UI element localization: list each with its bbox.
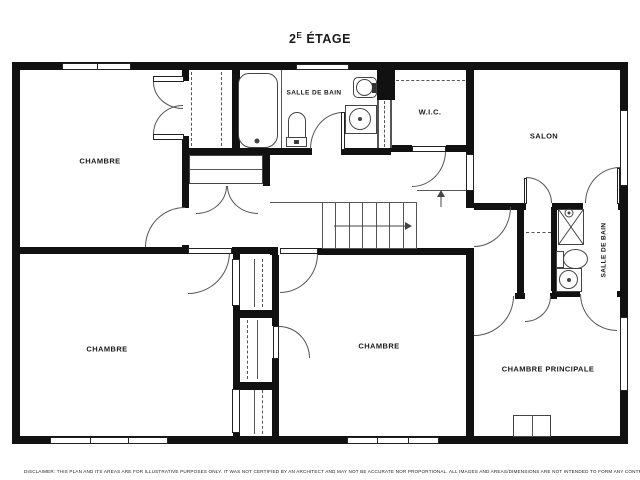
- room-label-walk-in-closet: W.I.C.: [419, 108, 442, 117]
- closet-rod: [221, 72, 222, 146]
- door-leaf: [280, 248, 318, 254]
- closet-rod: [262, 390, 263, 434]
- wall: [377, 62, 395, 100]
- closet-rod: [247, 320, 248, 379]
- wall: [617, 291, 628, 297]
- door-opening: [466, 208, 474, 248]
- room-label-bedroom-bottom-left: CHAMBRE: [86, 345, 127, 354]
- closet-track-line: [254, 390, 255, 434]
- closet-rod: [262, 259, 263, 307]
- wall-closet-divider: [240, 382, 273, 390]
- door-arc: [188, 252, 230, 294]
- door-arc: [412, 151, 446, 187]
- window: [296, 64, 349, 70]
- room-label-bathroom-ensuite: SALLE DE BAIN: [601, 222, 608, 277]
- wall: [341, 148, 391, 155]
- door-leaf: [153, 76, 184, 82]
- door-arc: [153, 105, 183, 134]
- door-arc: [310, 112, 343, 149]
- door-arc: [280, 254, 318, 293]
- sink-oval-basin: [356, 79, 373, 96]
- window: [347, 437, 439, 444]
- door-arc: [474, 296, 514, 336]
- pocket-door-jamb: [377, 100, 379, 148]
- toilet-flush: [294, 140, 299, 144]
- sink-faucet: [372, 83, 376, 93]
- door-leaf: [153, 134, 184, 140]
- wall: [263, 148, 270, 186]
- window: [62, 63, 131, 70]
- room-label-master-bedroom: CHAMBRE PRINCIPALE: [502, 365, 594, 374]
- room-label-bedroom-middle: CHAMBRE: [358, 342, 399, 351]
- floor-plan: 2E ÉTAGE: [0, 0, 640, 480]
- door-arc: [526, 177, 552, 203]
- door-leaf: [617, 168, 620, 204]
- closet-door-track: [232, 259, 240, 306]
- closet-rod: [191, 72, 192, 146]
- closet-shelf: [396, 80, 465, 81]
- dresser-divider: [532, 415, 533, 437]
- door-leaf: [273, 326, 279, 359]
- stairs-up-arrow: [437, 190, 445, 197]
- door-arc: [279, 326, 310, 358]
- window: [50, 437, 168, 444]
- wall: [466, 62, 474, 155]
- wall: [12, 247, 188, 254]
- wall: [517, 210, 524, 293]
- door-arc: [525, 296, 551, 322]
- landing-edge-line: [270, 202, 323, 203]
- wall: [270, 248, 278, 255]
- room-label-living-room: SALON: [530, 132, 558, 141]
- vanity-basin: [559, 270, 578, 289]
- room-label-bedroom-top-left: CHAMBRE: [79, 157, 120, 166]
- room-label-bathroom-main: SALLE DE BAIN: [286, 90, 341, 97]
- door-arc: [580, 294, 617, 331]
- door-arc: [585, 167, 620, 203]
- wall: [466, 190, 474, 208]
- staircase: [322, 202, 417, 249]
- door-leaf: [188, 248, 232, 254]
- window: [620, 317, 628, 391]
- closet-track-line: [254, 259, 255, 307]
- closet-door-track: [232, 389, 240, 433]
- door-leaf: [524, 178, 527, 204]
- wall: [182, 136, 189, 208]
- vanity-basin: [349, 108, 371, 130]
- door-arc: [227, 186, 258, 214]
- bathtub: [238, 73, 278, 148]
- closet-track-line: [257, 320, 258, 379]
- door-arc: [474, 207, 511, 247]
- railing-open-to-below: [466, 154, 474, 191]
- wall: [618, 203, 628, 210]
- door-leaf: [341, 112, 345, 150]
- landing-edge-line: [417, 190, 470, 191]
- door-leaf: [412, 146, 446, 152]
- toilet-bowl: [563, 249, 588, 269]
- tub-alcove-line: [281, 70, 282, 148]
- wall: [466, 248, 474, 437]
- pocket-door-jamb: [390, 100, 392, 148]
- closet-shelf: [526, 232, 551, 233]
- door-arc: [145, 207, 185, 247]
- wall-closet-divider: [240, 310, 273, 318]
- window: [620, 110, 628, 186]
- wall: [318, 248, 474, 255]
- disclaimer-text: DISCLAIMER: THIS PLAN AND ITS AREAS ARE …: [24, 469, 624, 474]
- wall: [272, 358, 279, 437]
- wall: [391, 145, 412, 152]
- plan-symbols: [0, 0, 640, 480]
- shower: [558, 209, 584, 245]
- hall-closet-shelf-line: [190, 169, 262, 170]
- toilet-bowl: [288, 112, 306, 140]
- pocket-door-dash: [384, 101, 385, 147]
- page-title: 2E ÉTAGE: [0, 31, 640, 46]
- wall: [515, 293, 525, 299]
- wall: [272, 255, 279, 326]
- wall: [182, 148, 312, 155]
- door-arc: [196, 186, 227, 214]
